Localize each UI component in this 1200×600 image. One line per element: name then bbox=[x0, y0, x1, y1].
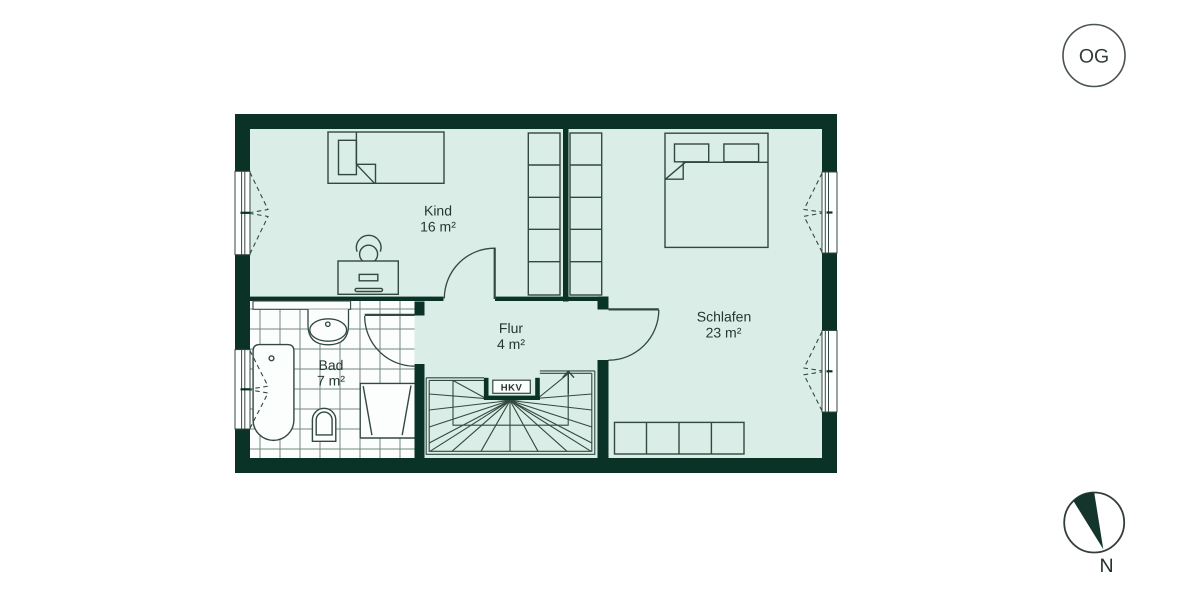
svg-text:4 m²: 4 m² bbox=[497, 336, 525, 352]
svg-text:7 m²: 7 m² bbox=[317, 372, 345, 388]
svg-text:Schlafen: Schlafen bbox=[697, 308, 751, 324]
svg-text:16 m²: 16 m² bbox=[420, 218, 456, 234]
svg-text:HKV: HKV bbox=[501, 383, 523, 394]
svg-text:OG: OG bbox=[1079, 45, 1109, 67]
svg-text:Flur: Flur bbox=[499, 320, 523, 336]
svg-text:Bad: Bad bbox=[319, 357, 344, 373]
svg-text:N: N bbox=[1100, 555, 1114, 577]
svg-text:Kind: Kind bbox=[424, 202, 452, 218]
svg-text:23 m²: 23 m² bbox=[706, 324, 742, 340]
